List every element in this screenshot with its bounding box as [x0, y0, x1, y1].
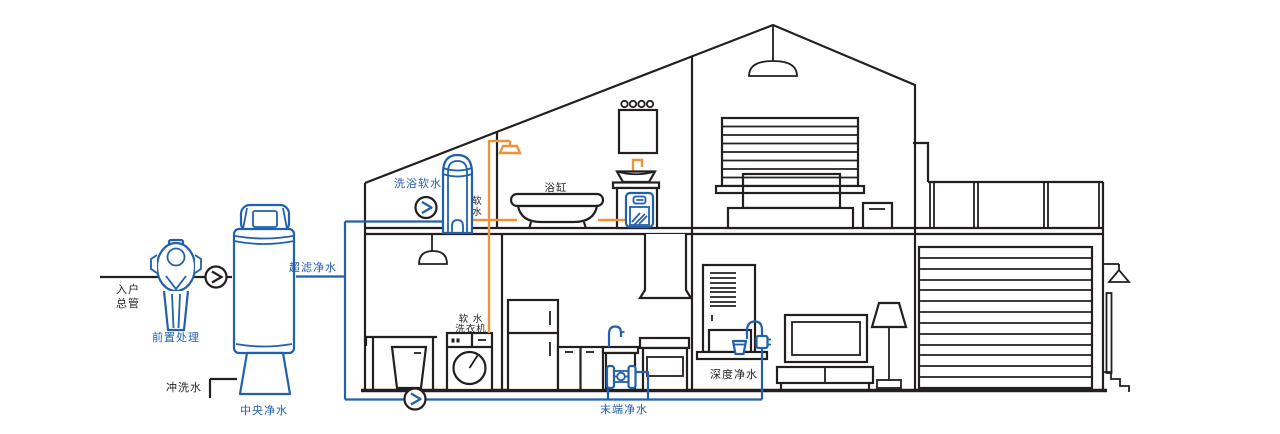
- flow-arrow-softener: [416, 197, 437, 218]
- vanity-sink: [617, 172, 655, 183]
- flow-arrow-supply: [405, 389, 426, 410]
- label-terminal-purifier: 末端净水: [600, 402, 648, 416]
- oven: [643, 348, 687, 390]
- mirror: [619, 110, 657, 153]
- stove-back: [640, 338, 689, 348]
- terrace-posts: [930, 182, 1099, 228]
- vanity-faucet: [633, 160, 642, 172]
- garage: [919, 247, 1129, 392]
- attic-pendant-lamp: [749, 26, 797, 76]
- central-purifier-tank: [234, 205, 294, 394]
- label-flush-water: 冲洗水: [166, 380, 202, 394]
- bath-softener-tank: [443, 155, 472, 233]
- wall-lamp: [1103, 264, 1129, 282]
- prefilter-unit: [151, 240, 201, 330]
- bedroom: [716, 118, 892, 228]
- label-soft-water-char1: 软: [472, 195, 483, 207]
- vanity-heater: [626, 193, 653, 227]
- label-bathtub: 浴缸: [545, 181, 568, 194]
- label-central-purifier: 中央净水: [240, 403, 288, 417]
- label-soft-water-char2: 水: [472, 206, 483, 218]
- shower-head: [500, 146, 520, 153]
- range-hood: [640, 234, 691, 298]
- label-prefilter: 前置处理: [152, 330, 200, 344]
- label-washer-line2: 洗衣机: [455, 323, 487, 335]
- bathtub: [511, 194, 603, 229]
- label-ultrafiltration: 超滤净水: [289, 260, 337, 274]
- mirror-lights: [621, 101, 653, 107]
- laundry-pendant-lamp: [419, 235, 447, 264]
- label-deep-purifier: 深度净水: [710, 367, 758, 381]
- floor-lamp: [872, 303, 906, 388]
- water-system-diagram: 入户 总管 前置处理 冲洗水 中央净水 超滤净水 洗浴软水 软 水 浴缸 软 水…: [0, 0, 1280, 434]
- label-inlet-line1: 入户: [116, 282, 140, 296]
- water-cup: [733, 341, 746, 354]
- label-bath-softener: 洗浴软水: [394, 176, 442, 190]
- nightstand: [863, 203, 892, 228]
- washing-machine: [447, 333, 492, 390]
- window-blind-slats: [722, 127, 858, 178]
- laundry-room: [366, 333, 492, 390]
- label-inlet-line2: 总管: [116, 296, 140, 310]
- window-sill: [716, 186, 864, 193]
- kitchen-sink-faucet: [609, 327, 621, 348]
- bed: [728, 208, 853, 228]
- kitchen: [508, 234, 691, 390]
- downspout: [1107, 293, 1112, 373]
- flow-arrow-inlet: [206, 267, 227, 288]
- dispenser-counter: [697, 352, 767, 359]
